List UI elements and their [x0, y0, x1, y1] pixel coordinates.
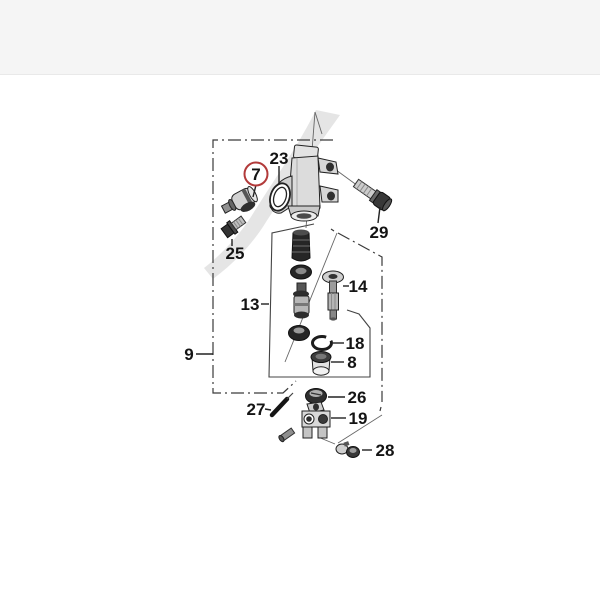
callout-25[interactable]: 25: [226, 244, 245, 263]
callout-27[interactable]: 27: [247, 400, 266, 419]
callout-8[interactable]: 8: [347, 353, 356, 372]
callout-26[interactable]: 26: [348, 388, 367, 407]
right-boundary: [331, 229, 382, 411]
part-29-bolt-drawing: [352, 177, 394, 213]
part-18-ring-drawing: [313, 337, 332, 350]
parts-diagram-canvas: 7 23 25 29 13 14 18 8 9 26 19 27 28: [0, 0, 600, 600]
callout-13[interactable]: 13: [241, 295, 260, 314]
callout-28[interactable]: 28: [376, 441, 395, 460]
callout-9[interactable]: 9: [184, 345, 193, 364]
part-14-pushrod-drawing: [323, 271, 344, 321]
part-27-pin-drawing: [272, 393, 293, 415]
part-8-cup-drawing: [311, 352, 331, 376]
callout-23[interactable]: 23: [270, 149, 289, 168]
part-19-clevis-drawing: [278, 402, 330, 443]
callout-29[interactable]: 29: [370, 223, 389, 242]
part-28-clamp-drawing: [336, 441, 360, 457]
callout-14[interactable]: 14: [349, 277, 368, 296]
callout-7[interactable]: 7: [251, 165, 260, 184]
callout-18[interactable]: 18: [346, 334, 365, 353]
callout-19[interactable]: 19: [349, 409, 368, 428]
part-26-grommet-drawing: [306, 389, 327, 404]
